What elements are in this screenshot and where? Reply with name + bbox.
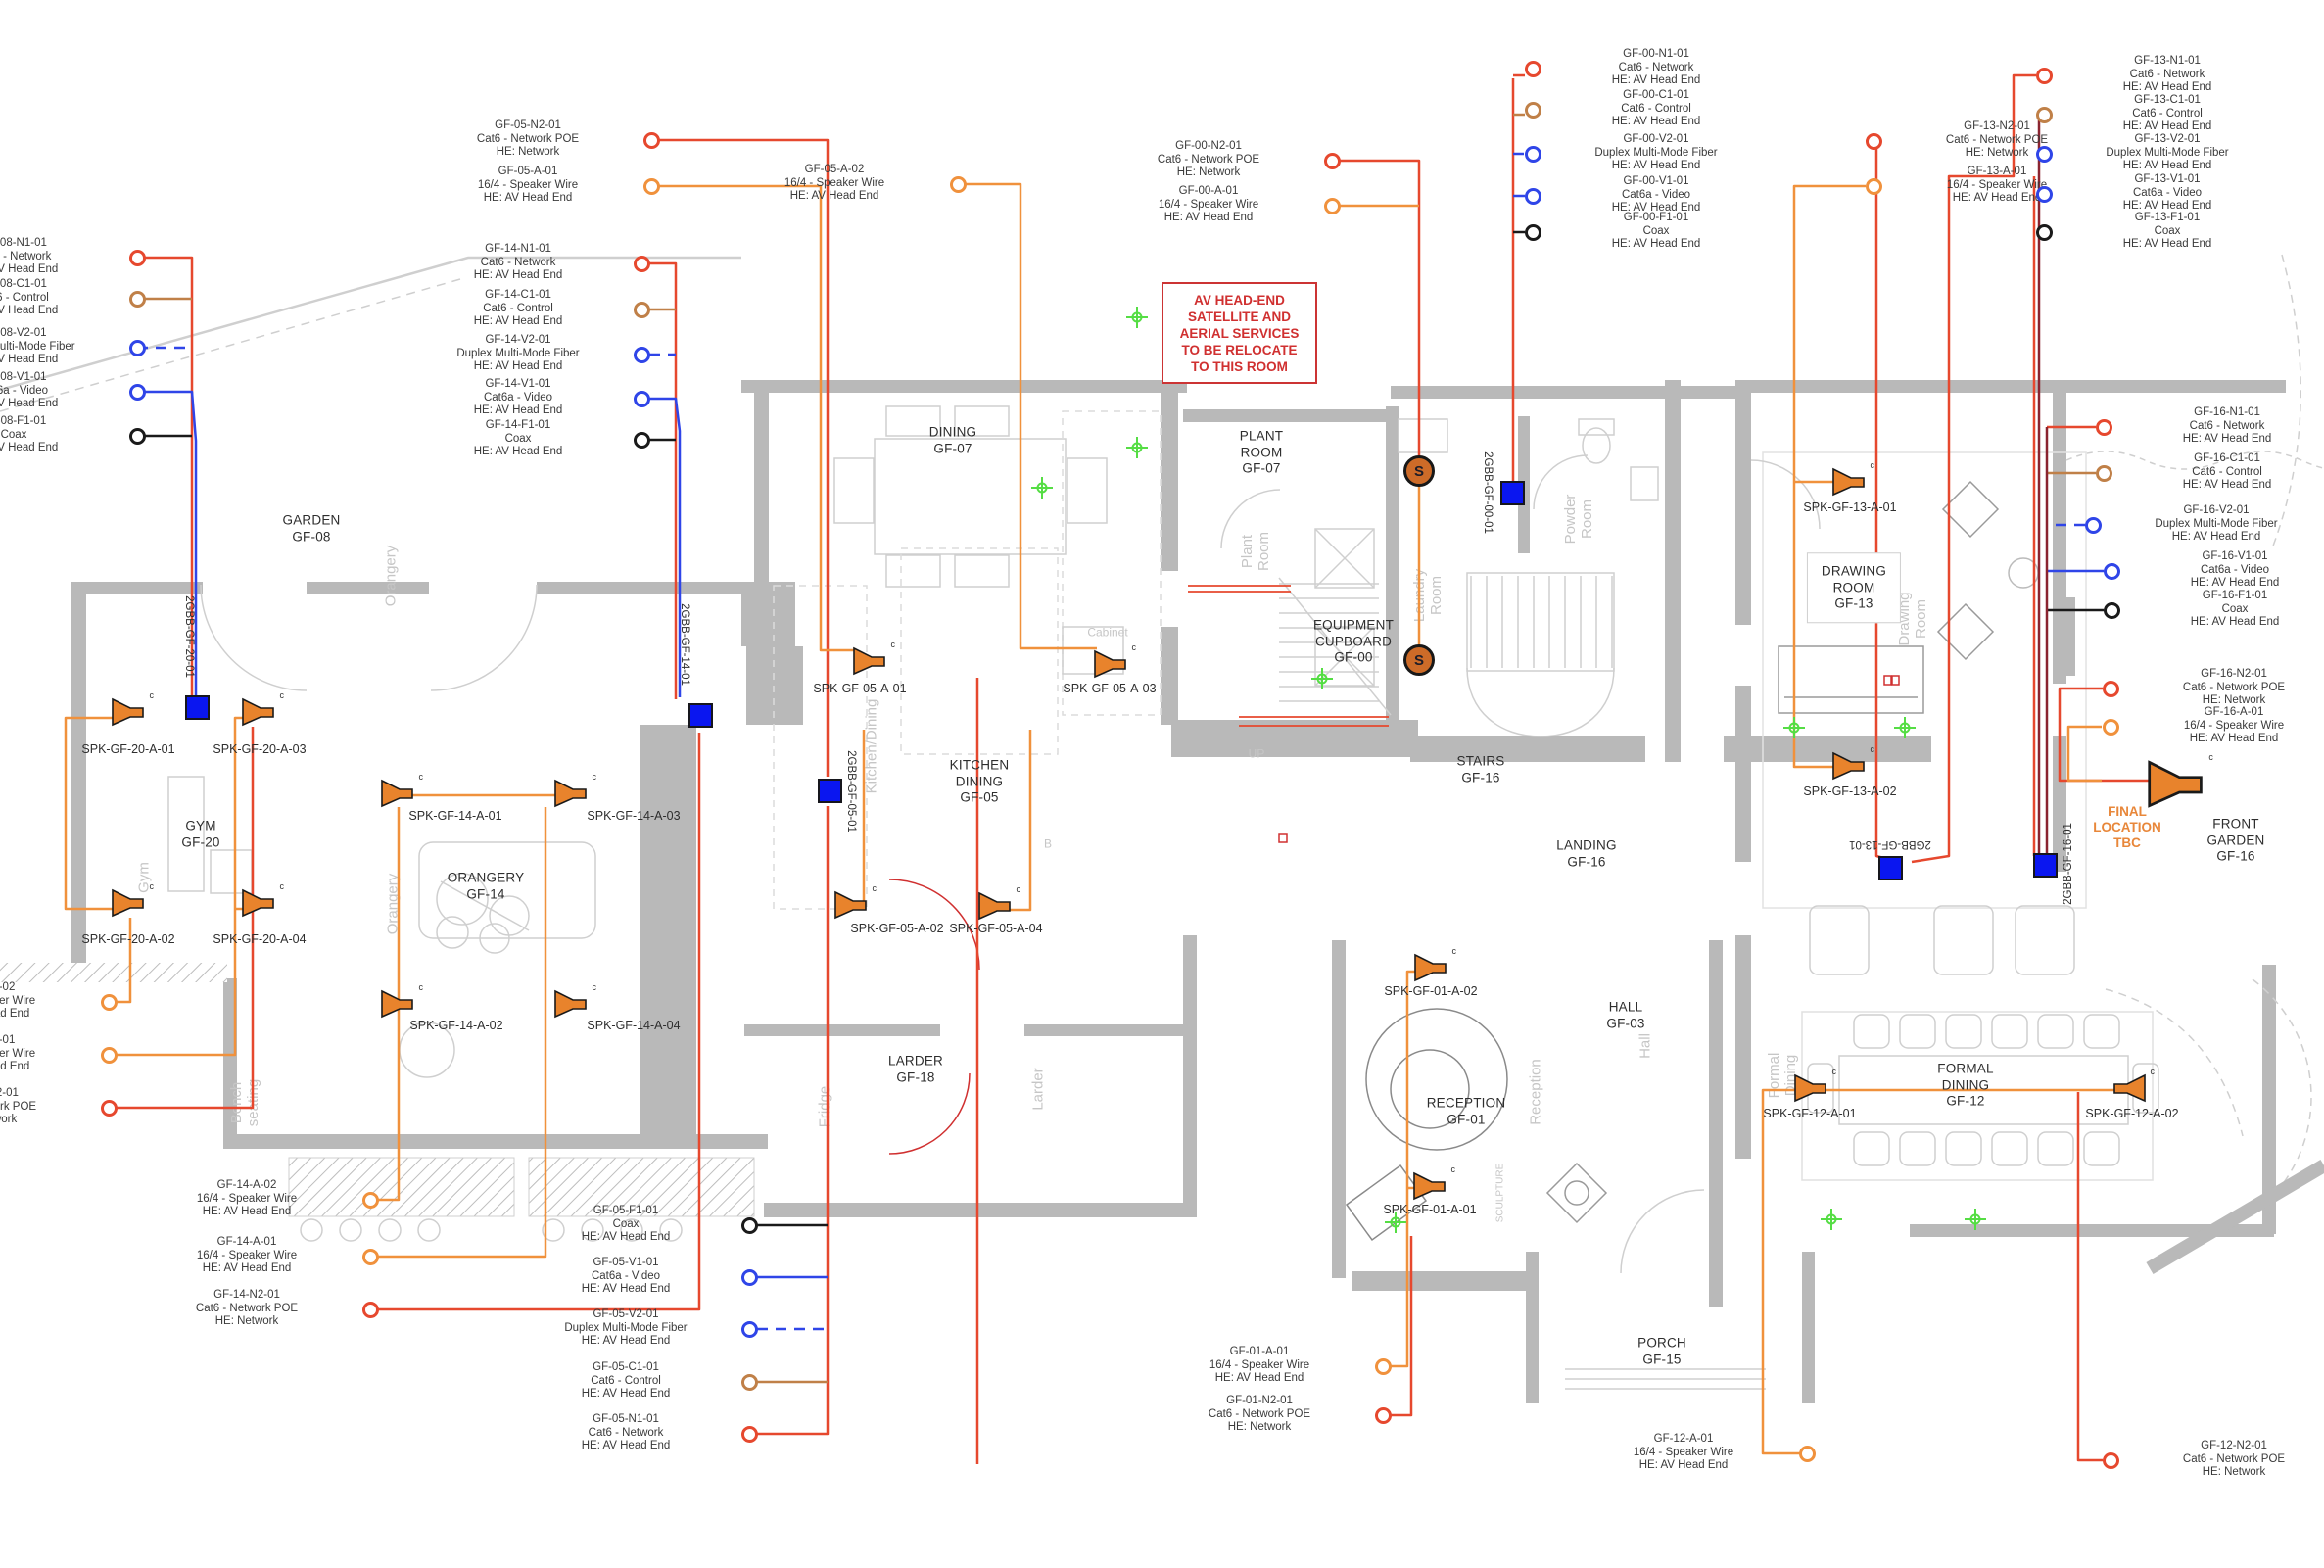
speaker-label: SPK-GF-12-A-02 [2085,1107,2178,1120]
speaker-label: SPK-GF-05-A-01 [813,682,906,695]
callout-cable: Cat6 - Network [516,1427,735,1441]
callout-cable: Cat6a - Video [2125,564,2324,578]
keypad-label: 2GBB-GF-05-01 [845,750,857,832]
light-fixture-marker [1126,437,1148,463]
cable-terminal-marker [2036,146,2053,163]
cable-callout-GF-14-F1-01: GF-14-F1-01CoaxHE: AV Head End [408,419,628,459]
callout-id: GF-05-A-02 [725,164,944,177]
callout-cable: Cat6a - Video [0,385,123,399]
callout-id: GF-16-N2-01 [2124,668,2324,682]
callout-cable: 16/4 - Speaker Wire [418,179,638,193]
keypad-2GBB-GF-16-01 [2033,853,2058,878]
speaker-icon-SPK-GF-20-A-04: c [242,888,275,923]
speaker-channel-tag: c [2208,752,2213,762]
speaker-channel-tag: c [1871,460,1875,470]
cable-callout-GF-14-V2-01: GF-14-V2-01Duplex Multi-Mode FiberHE: AV… [408,334,628,374]
cable-callout-GF-20-A-01: GF-20-A-0116/4 - Speaker WireHE: AV Head… [0,1034,95,1074]
callout-id: GF-05-N2-01 [418,119,638,133]
cable-terminal-marker [129,340,146,356]
speaker-icon-SPK-GF-05-A-03: c [1094,649,1127,684]
cable-terminal-marker [634,347,650,363]
callout-cable: Cat6 - Network POE [0,1101,95,1115]
callout-id: GF-14-V1-01 [408,378,628,392]
cable-callout-GF-20-N2-01: GF-20-N2-01Cat6 - Network POEHE: Network [0,1087,95,1127]
callout-cable: Coax [408,433,628,447]
cable-run-r [2078,1092,2103,1460]
cable-callout-GF-05-A-02: GF-05-A-0216/4 - Speaker WireHE: AV Head… [725,164,944,204]
wiring-layer [0,0,2324,1568]
speaker-channel-tag: c [1832,1067,1837,1076]
cable-terminal-marker [2104,563,2120,580]
cable-terminal-marker [741,1217,758,1234]
cable-terminal-marker [2103,681,2119,697]
speaker-channel-tag: c [593,772,597,782]
room-label: HALL GF-03 [1606,1000,1644,1032]
cable-callout-GF-08-N1-01: GF-08-N1-01Cat6 - NetworkHE: AV Head End [0,237,123,277]
cable-terminal-marker [129,291,146,308]
callout-id: GF-00-A-01 [1099,185,1318,199]
callout-cable: Duplex Multi-Mode Fiber [1546,147,1766,161]
callout-id: GF-00-V2-01 [1546,133,1766,147]
cable-terminal-marker [634,302,650,318]
cable-terminal-marker [2036,224,2053,241]
speaker-channel-tag: c [1452,946,1457,956]
callout-dest: HE: Network [418,146,638,160]
callout-id: GF-05-F1-01 [516,1205,735,1218]
cable-callout-GF-00-N1-01: GF-00-N1-01Cat6 - NetworkHE: AV Head End [1546,48,1766,88]
cable-terminal-marker [1799,1446,1816,1462]
callout-id: GF-14-V2-01 [408,334,628,348]
speaker-channel-tag: c [280,881,285,891]
room-label: DINING GF-07 [929,425,976,457]
speaker-icon-SPK-GF-01-A-01: c [1413,1171,1447,1206]
callout-id: GF-16-C1-01 [2117,452,2324,466]
callout-dest: HE: AV Head End [1099,212,1318,225]
cable-callout-GF-16-N1-01: GF-16-N1-01Cat6 - NetworkHE: AV Head End [2117,406,2324,447]
callout-cable: Cat6a - Video [1546,189,1766,203]
cable-terminal-marker [2103,1452,2119,1469]
cable-terminal-marker [2036,186,2053,203]
cable-run-o [1009,730,1030,910]
cable-terminal-marker [2036,107,2053,123]
callout-id: GF-05-V2-01 [516,1308,735,1322]
callout-cable: 16/4 - Speaker Wire [137,1250,356,1263]
speaker-channel-tag: c [593,982,597,992]
cable-terminal-marker [2096,419,2112,436]
callout-cable: 16/4 - Speaker Wire [1099,199,1318,213]
callout-id: GF-00-V1-01 [1546,175,1766,189]
callout-id: GF-08-N1-01 [0,237,123,251]
cable-callout-GF-00-N2-01: GF-00-N2-01Cat6 - Network POEHE: Network [1099,140,1318,180]
cable-callout-GF-13-V2-01: GF-13-V2-01Duplex Multi-Mode FiberHE: AV… [2058,133,2277,173]
callout-cable: Duplex Multi-Mode Fiber [2107,518,2324,532]
callout-cable: Cat6 - Network [408,257,628,270]
callout-dest: HE: AV Head End [0,398,123,411]
callout-cable: Duplex Multi-Mode Fiber [2058,147,2277,161]
speaker-label: SPK-GF-13-A-01 [1803,500,1896,514]
final-location-note: FINAL LOCATION TBC [2093,804,2161,851]
callout-dest: HE: AV Head End [2117,433,2324,447]
cable-callout-GF-00-A-01: GF-00-A-0116/4 - Speaker WireHE: AV Head… [1099,185,1318,225]
cable-run-r [757,806,828,1434]
cable-callout-GF-05-N2-01: GF-05-N2-01Cat6 - Network POEHE: Network [418,119,638,160]
light-fixture-marker [1894,717,1916,743]
speaker-channel-tag: c [1871,744,1875,754]
light-fixture-marker [1783,717,1805,743]
callout-id: GF-14-A-02 [137,1179,356,1193]
ceiling-speaker-s: S [1403,644,1435,676]
callout-cable: Cat6 - Network POE [2124,1453,2324,1467]
callout-dest: HE: AV Head End [408,315,628,329]
callout-id: GF-16-N1-01 [2117,406,2324,420]
cable-callout-GF-08-V1-01: GF-08-V1-01Cat6a - VideoHE: AV Head End [0,371,123,411]
cable-terminal-marker [950,176,967,193]
speaker-channel-tag: c [419,982,424,992]
callout-dest: HE: Network [0,1114,95,1127]
cable-terminal-marker [129,384,146,401]
callout-dest: HE: AV Head End [408,360,628,374]
callout-dest: HE: AV Head End [516,1283,735,1297]
cable-terminal-marker [1525,102,1541,119]
cable-run-o [2068,727,2102,781]
cable-terminal-marker [362,1192,379,1209]
callout-cable: 16/4 - Speaker Wire [725,177,944,191]
callout-id: GF-08-C1-01 [0,278,123,292]
speaker-icon-SPK-GF-13-A-02: c [1832,751,1866,785]
callout-id: GF-20-A-01 [0,1034,95,1048]
speaker-label: SPK-GF-05-A-03 [1063,682,1156,695]
cable-callout-GF-13-C1-01: GF-13-C1-01Cat6 - ControlHE: AV Head End [2058,94,2277,134]
cable-callout-GF-00-V2-01: GF-00-V2-01Duplex Multi-Mode FiberHE: AV… [1546,133,1766,173]
callout-cable: Coax [0,429,123,443]
keypad-label: 2GBB-GF-20-01 [183,595,195,678]
cable-terminal-marker [1525,61,1541,77]
callout-dest: HE: AV Head End [1546,238,1766,252]
speaker-icon-SPK-GF-05-A-04: c [978,891,1012,926]
cable-run-o [1763,1090,1815,1453]
cable-callout-GF-05-A-01: GF-05-A-0116/4 - Speaker WireHE: AV Head… [418,166,638,206]
callout-id: GF-20-A-02 [0,981,95,995]
callout-dest: HE: AV Head End [516,1440,735,1453]
speaker-channel-tag: c [891,640,896,649]
cable-callout-GF-08-C1-01: GF-08-C1-01Cat6 - ControlHE: AV Head End [0,278,123,318]
callout-id: GF-00-N2-01 [1099,140,1318,154]
callout-cable: 16/4 - Speaker Wire [2124,720,2324,734]
cable-terminal-marker [1525,146,1541,163]
callout-id: GF-05-V1-01 [516,1257,735,1270]
cable-terminal-marker [634,256,650,272]
callout-cable: Coax [2125,603,2324,617]
keypad-label: 2GBB-GF-14-01 [679,603,690,686]
callout-cable: 16/4 - Speaker Wire [0,1048,95,1062]
light-fixture-marker [1126,307,1148,333]
relocate-note: AV HEAD-END SATELLITE AND AERIAL SERVICE… [1162,282,1317,384]
cable-terminal-marker [2036,68,2053,84]
callout-dest: HE: AV Head End [137,1262,356,1276]
cable-terminal-marker [1375,1358,1392,1375]
speaker-channel-tag: c [1451,1164,1456,1174]
cable-callout-GF-14-N2-01: GF-14-N2-01Cat6 - Network POEHE: Network [137,1289,356,1329]
callout-dest: HE: Network [137,1315,356,1329]
speaker-icon-SPK-GF-20-A-01: c [112,697,145,732]
callout-cable: Cat6 - Control [1546,103,1766,117]
callout-cable: Cat6a - Video [2058,187,2277,201]
callout-cable: Cat6 - Control [2058,108,2277,121]
light-fixture-marker [1031,477,1053,503]
cable-callout-GF-01-A-01: GF-01-A-0116/4 - Speaker WireHE: AV Head… [1150,1346,1369,1386]
cable-terminal-marker [1525,224,1541,241]
keypad-2GBB-GF-14-01 [688,703,713,728]
cable-terminal-marker [1866,178,1882,195]
callout-id: GF-01-N2-01 [1150,1395,1369,1408]
cable-terminal-marker [1375,1407,1392,1424]
cable-terminal-marker [634,391,650,407]
speaker-channel-tag: c [1132,642,1137,652]
room-label: PORCH GF-15 [1637,1336,1686,1368]
callout-cable: 16/4 - Speaker Wire [1574,1447,1793,1460]
callout-id: GF-05-C1-01 [516,1361,735,1375]
speaker-icon-SPK-GF-20-A-03: c [242,697,275,732]
room-label: EQUIPMENT CUPBOARD GF-00 [1313,617,1394,666]
callout-dest: HE: AV Head End [2058,81,2277,95]
callout-cable: Cat6 - Network POE [1150,1408,1369,1422]
cable-terminal-marker [1324,198,1341,214]
callout-id: GF-05-A-01 [418,166,638,179]
callout-id: GF-00-C1-01 [1546,89,1766,103]
callout-id: GF-16-V2-01 [2107,504,2324,518]
speaker-icon-SPK-GF-01-A-02: c [1414,953,1447,987]
cable-callout-GF-20-A-02: GF-20-A-0216/4 - Speaker WireHE: AV Head… [0,981,95,1022]
callout-cable: Cat6 - Network POE [2124,682,2324,695]
callout-cable: 16/4 - Speaker Wire [0,995,95,1009]
cable-terminal-marker [362,1249,379,1265]
speaker-channel-tag: c [150,690,155,700]
callout-id: GF-12-N2-01 [2124,1440,2324,1453]
room-label: FORMAL DINING GF-12 [1937,1061,1993,1110]
room-label: DRAWING ROOM GF-13 [1807,552,1901,623]
cable-callout-GF-12-A-01: GF-12-A-0116/4 - Speaker WireHE: AV Head… [1574,1433,1793,1473]
cable-terminal-marker [643,132,660,149]
callout-dest: HE: AV Head End [1150,1372,1369,1386]
ceiling-speaker-s: S [1403,455,1435,487]
keypad-2GBB-GF-05-01 [818,779,842,803]
keypad-2GBB-GF-20-01 [185,695,210,720]
callout-cable: Cat6 - Network [2117,420,2324,434]
cable-callout-GF-14-V1-01: GF-14-V1-01Cat6a - VideoHE: AV Head End [408,378,628,418]
callout-dest: HE: AV Head End [1574,1459,1793,1473]
callout-dest: HE: AV Head End [0,263,123,277]
floor-plan-canvas: AV HEAD-END SATELLITE AND AERIAL SERVICE… [0,0,2324,1568]
cable-run-o [966,184,1097,648]
cable-callout-GF-05-F1-01: GF-05-F1-01CoaxHE: AV Head End [516,1205,735,1245]
keypad-label: 2GBB-GF-00-01 [1482,451,1494,534]
callout-id: GF-14-C1-01 [408,289,628,303]
cable-terminal-marker [741,1321,758,1338]
callout-id: GF-08-F1-01 [0,415,123,429]
callout-dest: HE: AV Head End [516,1335,735,1349]
callout-cable: Cat6 - Network POE [137,1303,356,1316]
callout-dest: HE: AV Head End [2125,577,2324,591]
callout-dest: HE: AV Head End [418,192,638,206]
cable-callout-GF-00-C1-01: GF-00-C1-01Cat6 - ControlHE: AV Head End [1546,89,1766,129]
speaker-icon-SPK-GF-14-A-03: c [554,779,588,813]
cable-callout-GF-13-F1-01: GF-13-F1-01CoaxHE: AV Head End [2058,212,2277,252]
callout-id: GF-14-A-01 [137,1236,356,1250]
callout-dest: HE: Network [1150,1421,1369,1435]
speaker-channel-tag: c [2151,1067,2156,1076]
callout-dest: HE: AV Head End [725,190,944,204]
callout-id: GF-13-N1-01 [2058,55,2277,69]
speaker-icon-SPK-GF-14-A-02: c [381,989,414,1023]
cable-terminal-marker [2103,719,2119,736]
callout-cable: Cat6 - Control [516,1375,735,1389]
speaker-channel-tag: c [150,881,155,891]
room-label: FRONT GARDEN GF-16 [2207,816,2265,865]
callout-dest: HE: AV Head End [516,1388,735,1402]
callout-dest: HE: AV Head End [0,442,123,455]
cable-terminal-marker [741,1269,758,1286]
cable-terminal-marker [101,1047,118,1064]
cable-terminal-marker [741,1426,758,1443]
cable-terminal-marker [101,1100,118,1117]
cable-callout-GF-00-V1-01: GF-00-V1-01Cat6a - VideoHE: AV Head End [1546,175,1766,215]
speaker-channel-tag: c [1017,884,1021,894]
callout-id: GF-12-A-01 [1574,1433,1793,1447]
cable-terminal-marker [2104,602,2120,619]
light-fixture-marker [1965,1209,1986,1235]
callout-id: GF-05-N1-01 [516,1413,735,1427]
callout-cable: Cat6 - Control [2117,466,2324,480]
callout-id: GF-16-A-01 [2124,706,2324,720]
callout-dest: HE: AV Head End [0,1061,95,1074]
cable-callout-GF-01-N2-01: GF-01-N2-01Cat6 - Network POEHE: Network [1150,1395,1369,1435]
callout-id: GF-13-V2-01 [2058,133,2277,147]
callout-dest: HE: AV Head End [408,404,628,418]
keypad-label: 2GBB-GF-13-01 [1849,838,1931,850]
speaker-label: SPK-GF-20-A-04 [213,932,306,946]
callout-dest: HE: AV Head End [1546,74,1766,88]
cable-terminal-marker [2085,517,2102,534]
callout-id: GF-13-F1-01 [2058,212,2277,225]
callout-dest: HE: AV Head End [1546,160,1766,173]
room-label: STAIRS GF-16 [1457,754,1505,786]
room-label: GARDEN GF-08 [283,513,341,546]
speaker-icon-SPK-GF-14-A-01: c [381,779,414,813]
cable-callout-GF-16-C1-01: GF-16-C1-01Cat6 - ControlHE: AV Head End [2117,452,2324,493]
cable-callout-GF-16-F1-01: GF-16-F1-01CoaxHE: AV Head End [2125,590,2324,630]
keypad-2GBB-GF-13-01 [1878,856,1903,880]
callout-id: GF-08-V1-01 [0,371,123,385]
speaker-channel-tag: c [280,690,285,700]
cable-terminal-marker [643,178,660,195]
callout-id: GF-13-C1-01 [2058,94,2277,108]
cable-terminal-marker [362,1302,379,1318]
callout-dest: HE: AV Head End [137,1206,356,1219]
cable-run-o [117,918,130,1002]
callout-id: GF-20-N2-01 [0,1087,95,1101]
speaker-icon-SPK-GF-14-A-04: c [554,989,588,1023]
cable-terminal-marker [101,994,118,1011]
cable-callout-GF-16-V2-01: GF-16-V2-01Duplex Multi-Mode FiberHE: AV… [2107,504,2324,545]
callout-cable: Cat6a - Video [516,1270,735,1284]
callout-id: GF-00-N1-01 [1546,48,1766,62]
callout-id: GF-14-N2-01 [137,1289,356,1303]
callout-dest: HE: AV Head End [2107,531,2324,545]
speaker-label: SPK-GF-20-A-02 [81,932,174,946]
cable-callout-GF-16-V1-01: GF-16-V1-01Cat6a - VideoHE: AV Head End [2125,550,2324,591]
speaker-icon-SPK-GF-20-A-02: c [112,888,145,923]
callout-dest: HE: AV Head End [516,1231,735,1245]
speaker-icon-SPK-GF-13-A-01: c [1832,467,1866,501]
callout-cable: Duplex Multi-Mode Fiber [408,348,628,361]
room-label: ORANGERY GF-14 [448,871,525,903]
callout-dest: HE: AV Head End [2125,616,2324,630]
speaker-icon-SPK-GF-05-A-02: c [834,890,868,925]
cable-callout-GF-14-C1-01: GF-14-C1-01Cat6 - ControlHE: AV Head End [408,289,628,329]
keypad-label: 2GBB-GF-16-01 [2063,823,2074,905]
callout-cable: Cat6 - Network POE [1099,154,1318,167]
callout-dest: HE: AV Head End [408,446,628,459]
room-label: KITCHEN DINING GF-05 [950,757,1010,806]
light-fixture-marker [1821,1209,1842,1235]
callout-cable: Cat6 - Control [0,292,123,306]
callout-cable: 16/4 - Speaker Wire [137,1193,356,1207]
callout-cable: Cat6 - Control [408,303,628,316]
callout-cable: Cat6 - Network [0,251,123,264]
cable-terminal-marker [1525,188,1541,205]
callout-dest: HE: AV Head End [408,269,628,283]
cable-terminal-marker [634,432,650,449]
cable-run-o [1391,972,1420,1366]
callout-id: GF-13-V1-01 [2058,173,2277,187]
room-label: LARDER GF-18 [888,1054,943,1086]
callout-id: GF-14-F1-01 [408,419,628,433]
callout-dest: HE: AV Head End [0,305,123,318]
speaker-icon-SPK-GF-12-A-01: c [1794,1073,1827,1108]
callout-id: GF-16-F1-01 [2125,590,2324,603]
speaker-label: SPK-GF-14-A-02 [409,1019,502,1032]
cable-callout-GF-05-C1-01: GF-05-C1-01Cat6 - ControlHE: AV Head End [516,1361,735,1402]
cable-terminal-marker [1866,133,1882,150]
cable-callout-GF-13-N1-01: GF-13-N1-01Cat6 - NetworkHE: AV Head End [2058,55,2277,95]
cable-callout-GF-00-F1-01: GF-00-F1-01CoaxHE: AV Head End [1546,212,1766,252]
callout-cable: Coax [516,1218,735,1232]
room-label: GYM GF-20 [181,819,219,851]
callout-dest: HE: AV Head End [2124,733,2324,746]
cable-run-o [117,718,246,1055]
cable-terminal-marker [129,428,146,445]
cable-terminal-marker [129,250,146,266]
callout-cable: Cat6a - Video [408,392,628,405]
cable-callout-GF-05-V2-01: GF-05-V2-01Duplex Multi-Mode FiberHE: AV… [516,1308,735,1349]
speaker-label: SPK-GF-12-A-01 [1763,1107,1856,1120]
cable-terminal-marker [2096,465,2112,482]
callout-id: GF-16-V1-01 [2125,550,2324,564]
callout-dest: HE: Network [1099,166,1318,180]
callout-dest: HE: AV Head End [2117,479,2324,493]
cable-terminal-marker [1324,153,1341,169]
light-fixture-marker [1311,668,1333,694]
cable-terminal-marker [741,1374,758,1391]
cable-callout-GF-14-A-02: GF-14-A-0216/4 - Speaker WireHE: AV Head… [137,1179,356,1219]
callout-id: GF-00-F1-01 [1546,212,1766,225]
speaker-label: SPK-GF-20-A-01 [81,742,174,756]
cable-run-r [649,263,676,699]
speaker-icon-SPK-GF-05-A-01: c [853,646,886,681]
cable-callout-GF-08-V2-01: GF-08-V2-01Duplex Multi-Mode FiberHE: AV… [0,327,123,367]
callout-cable: Coax [2058,225,2277,239]
speaker-icon-SPK-GF-12-A-02: c [2112,1073,2146,1108]
